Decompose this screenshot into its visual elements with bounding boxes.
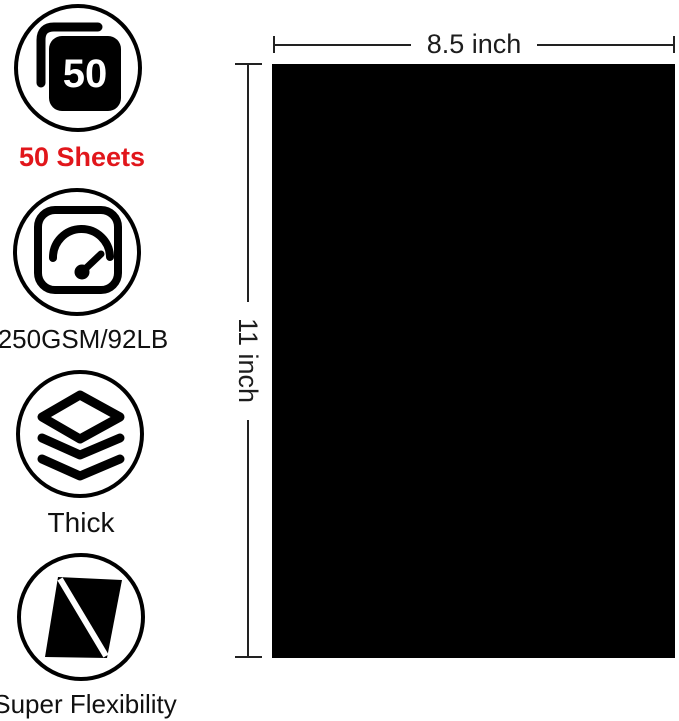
dimension-end-tick <box>235 656 262 658</box>
product-infographic: 50 50 Sheets 250GSM/92LB Thick Super Fle… <box>0 0 679 721</box>
dimension-line <box>275 44 411 46</box>
layers-icon <box>15 369 145 499</box>
feature-label-flexibility: Super Flexibility <box>0 689 177 720</box>
sheet-count-number: 50 <box>63 52 108 96</box>
feature-label-weight: 250GSM/92LB <box>0 324 168 355</box>
height-dimension-label: 11 inch <box>233 318 264 403</box>
sheet-stack-icon: 50 <box>13 3 143 133</box>
dimension-line <box>537 44 673 46</box>
gauge-icon <box>12 187 142 317</box>
height-dimension-label-box: 11 inch <box>234 302 262 420</box>
feature-label-sheet-count: 50 Sheets <box>19 142 145 173</box>
black-paper-sheet <box>272 64 675 658</box>
dimension-line <box>247 420 249 657</box>
dimension-end-tick <box>673 36 675 53</box>
height-dimension: 11 inch <box>234 63 262 658</box>
width-dimension-label: 8.5 inch <box>411 36 538 53</box>
bent-sheet-icon <box>16 552 146 682</box>
feature-label-thickness: Thick <box>48 507 115 539</box>
dimension-line <box>247 65 249 302</box>
width-dimension: 8.5 inch <box>273 36 675 53</box>
